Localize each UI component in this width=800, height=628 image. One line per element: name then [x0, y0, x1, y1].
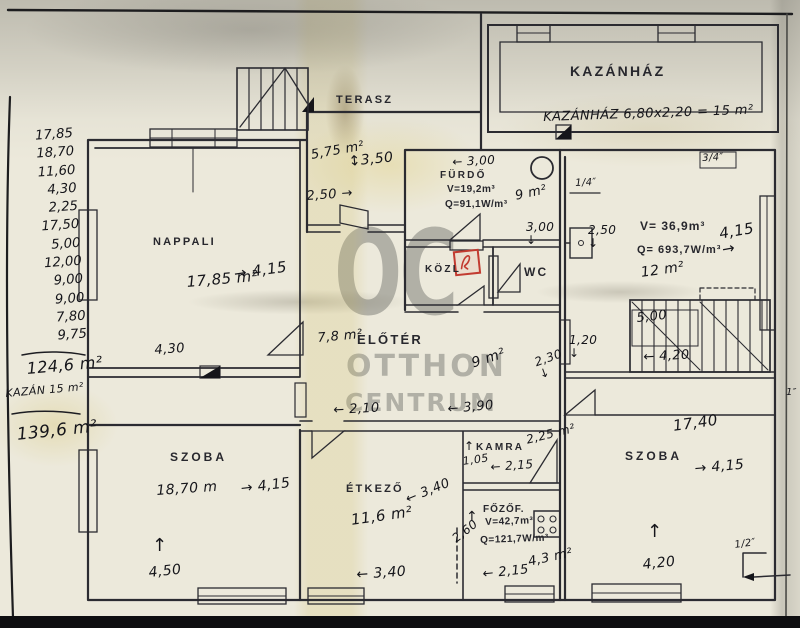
upper-room-vent-left: 1/4″: [575, 178, 597, 190]
stairs-dim-a: 1,20 ↓: [569, 334, 597, 360]
room-label-kazanhaz: KAZÁNHÁZ: [570, 64, 665, 79]
room-label-kozl: KÖZL: [425, 265, 461, 276]
half-inch-bracket: [743, 553, 790, 581]
szoba-bal-arrow: ↑: [152, 536, 167, 555]
upper-room-heat: Q= 693,7W/m³: [637, 245, 721, 257]
room-label-terasz: TERASZ: [336, 95, 393, 107]
furdo-top-dim: ← 3,00: [452, 154, 496, 169]
boiler-circle: [531, 157, 553, 179]
kamra-arrow: ↑: [464, 440, 474, 453]
szoba-jobb-arrow: ↑: [647, 522, 662, 541]
nappali-bottom-dim: 4,30: [154, 342, 185, 358]
upper-room-vent-top: 3/4″: [702, 153, 724, 165]
furdo-volume: V=19,2m³: [447, 185, 495, 196]
plan-linework: [0, 0, 800, 628]
room-label-szoba-jobb: SZOBA: [625, 450, 682, 463]
furdo-heat: Q=91,1W/m³: [445, 200, 508, 211]
floor-plan-scan: OC OTTHON CENTRUM: [0, 0, 800, 628]
room-label-eloter: ELŐTÉR: [357, 333, 423, 347]
edge-dim: 1″: [786, 388, 797, 399]
upper-room-volume: V= 36,9m³: [640, 220, 705, 233]
furdo-inner-dim: 3,00 ↓: [526, 221, 554, 247]
windows: [79, 129, 775, 604]
room-label-wc: WC: [524, 266, 548, 279]
terasz-stairs: [237, 68, 308, 130]
scan-frame: [0, 10, 800, 628]
upper-room-width-dim: 4,15 →: [718, 220, 758, 258]
room-label-furdo: FÜRDŐ: [440, 171, 487, 182]
eloter-dim-a: ← 2,10: [333, 402, 380, 418]
fozof-volume: V=42,7m³: [485, 516, 534, 528]
room-label-etkezo: ÉTKEZŐ: [346, 484, 404, 496]
stairs-bottom-dim: ← 4,20: [643, 349, 690, 365]
room-label-nappali: NAPPALI: [153, 237, 216, 249]
house-walls: [88, 14, 775, 600]
room-label-fozof: FŐZŐF.: [483, 505, 525, 516]
upper-room-left-dim: 2,50 ↓: [588, 224, 616, 250]
room-label-szoba-bal: SZOBA: [170, 451, 227, 464]
